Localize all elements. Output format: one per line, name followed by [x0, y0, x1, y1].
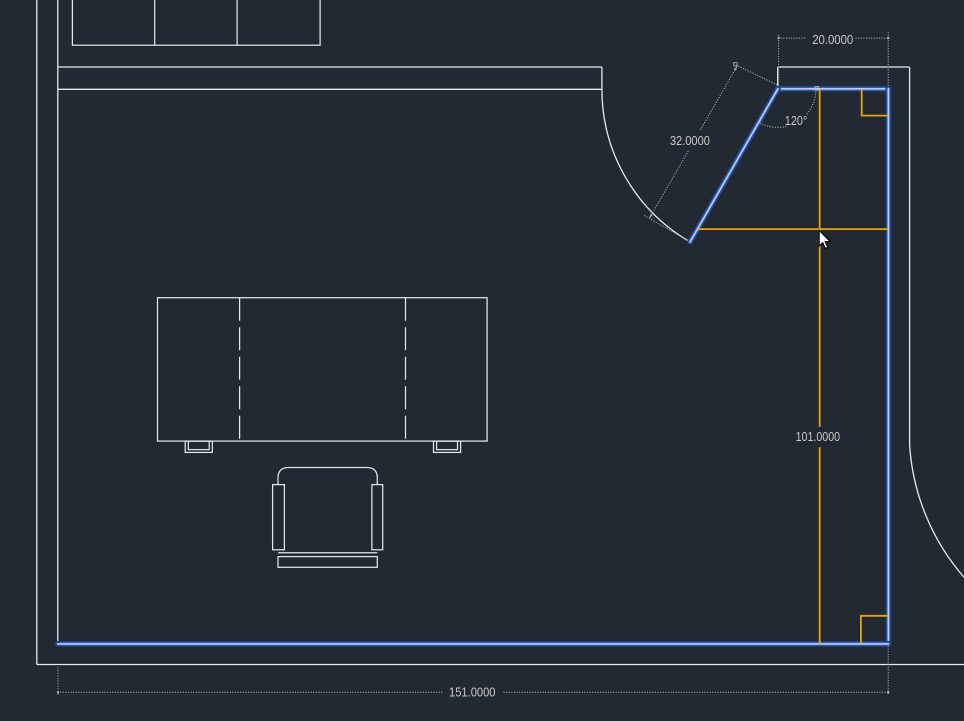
- svg-text:20.0000: 20.0000: [812, 33, 853, 47]
- svg-text:101.0000: 101.0000: [796, 430, 841, 444]
- svg-text:32.0000: 32.0000: [670, 134, 710, 148]
- svg-text:120°: 120°: [785, 114, 808, 128]
- svg-text:151.0000: 151.0000: [449, 686, 496, 700]
